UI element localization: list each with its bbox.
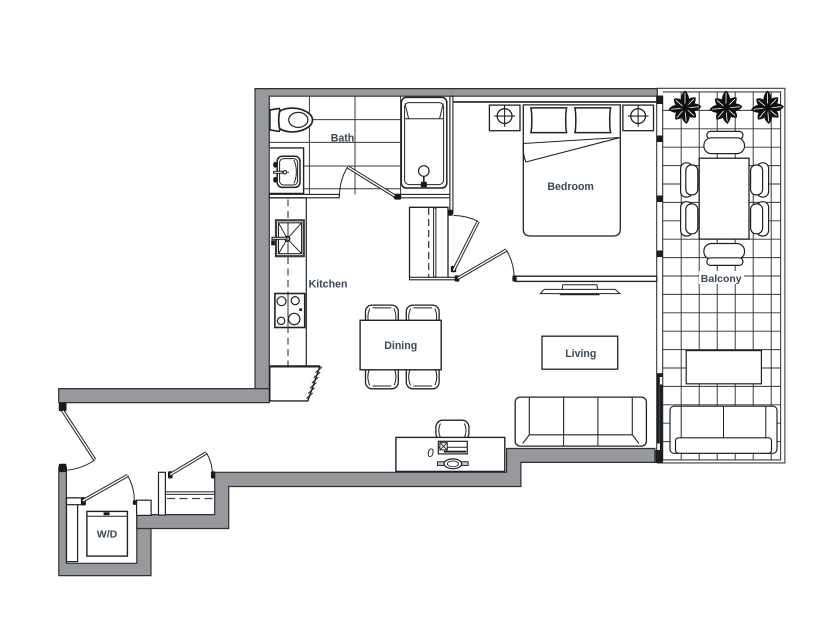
svg-text:Living: Living bbox=[565, 348, 596, 360]
svg-text:Bath: Bath bbox=[331, 133, 355, 145]
svg-text:Balcony: Balcony bbox=[701, 273, 742, 285]
svg-text:Bedroom: Bedroom bbox=[547, 181, 594, 193]
svg-text:0: 0 bbox=[427, 448, 434, 460]
svg-text:Kitchen: Kitchen bbox=[309, 279, 348, 291]
svg-text:Dining: Dining bbox=[384, 340, 417, 352]
svg-text:W/D: W/D bbox=[97, 529, 118, 541]
